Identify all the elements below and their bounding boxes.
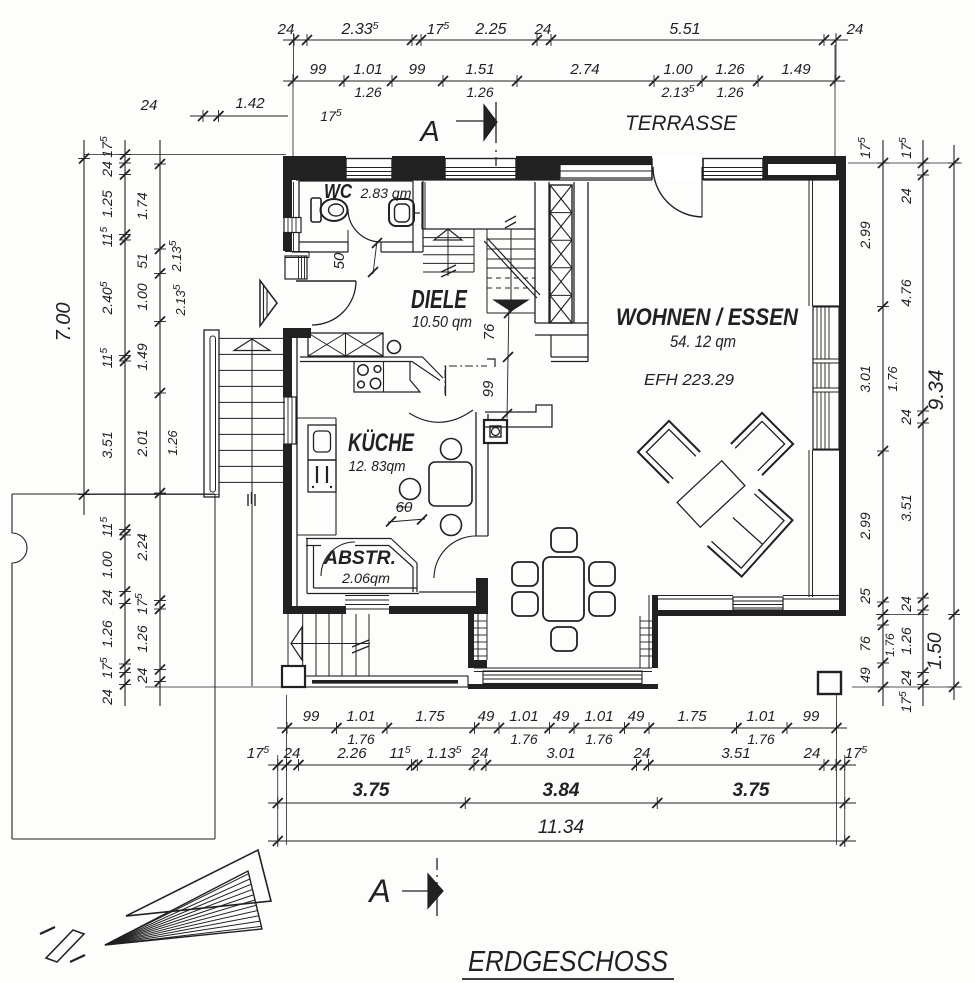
svg-text:3.01: 3.01 [857, 365, 873, 392]
svg-text:WOHNEN / ESSEN: WOHNEN / ESSEN [616, 304, 799, 331]
svg-text:4.76: 4.76 [898, 279, 914, 306]
svg-text:1.01: 1.01 [509, 708, 538, 725]
svg-text:1.01: 1.01 [353, 61, 382, 78]
svg-text:1.76: 1.76 [883, 633, 897, 657]
svg-text:1.26: 1.26 [715, 61, 745, 78]
svg-text:49: 49 [478, 708, 495, 725]
svg-text:49: 49 [628, 708, 645, 725]
svg-text:TERRASSE: TERRASSE [625, 112, 738, 135]
svg-text:54. 12 qm: 54. 12 qm [670, 332, 736, 351]
svg-text:99: 99 [409, 61, 426, 78]
svg-text:1.26: 1.26 [99, 620, 115, 647]
svg-text:2.74: 2.74 [569, 61, 599, 78]
svg-text:9.34: 9.34 [925, 370, 948, 411]
svg-text:DIELE: DIELE [411, 284, 467, 314]
svg-text:KÜCHE: KÜCHE [348, 428, 415, 457]
svg-text:99: 99 [803, 708, 820, 725]
svg-text:1.51: 1.51 [465, 61, 494, 78]
svg-text:1.26: 1.26 [165, 430, 180, 456]
svg-text:EFH 223.29: EFH 223.29 [644, 372, 734, 389]
svg-text:1.25: 1.25 [99, 190, 115, 217]
svg-text:1.76: 1.76 [747, 731, 774, 747]
svg-text:2.99: 2.99 [857, 221, 873, 249]
svg-text:50: 50 [331, 252, 348, 269]
svg-text:49: 49 [857, 667, 873, 683]
svg-text:12. 83qm: 12. 83qm [349, 458, 406, 475]
svg-text:2.25: 2.25 [474, 21, 506, 38]
svg-text:24: 24 [283, 745, 301, 762]
svg-text:A: A [367, 873, 390, 909]
svg-text:24: 24 [277, 21, 295, 38]
svg-text:1.01: 1.01 [346, 708, 375, 725]
svg-text:2.26: 2.26 [336, 745, 367, 762]
svg-text:25: 25 [857, 588, 873, 605]
svg-text:11.34: 11.34 [538, 817, 584, 838]
svg-text:A: A [418, 116, 439, 148]
svg-text:1.49: 1.49 [134, 343, 150, 370]
svg-text:76: 76 [857, 636, 873, 652]
svg-text:24: 24 [898, 188, 914, 205]
svg-text:3.51: 3.51 [99, 431, 115, 458]
svg-text:2.99: 2.99 [857, 512, 873, 540]
svg-text:ERDGESCHOSS: ERDGESCHOSS [468, 946, 669, 978]
svg-text:49: 49 [553, 708, 570, 725]
svg-text:1.50: 1.50 [925, 632, 946, 669]
svg-text:3.75: 3.75 [353, 780, 390, 801]
svg-text:24: 24 [846, 21, 864, 38]
svg-text:ABSTR.: ABSTR. [323, 548, 396, 569]
svg-text:24: 24 [134, 668, 150, 685]
svg-text:99: 99 [310, 61, 327, 78]
svg-text:2.24: 2.24 [134, 533, 150, 561]
svg-text:1.00: 1.00 [663, 61, 693, 78]
svg-text:24: 24 [898, 596, 914, 613]
svg-text:99: 99 [480, 380, 497, 397]
svg-text:5.51: 5.51 [669, 21, 700, 38]
svg-text:24: 24 [140, 97, 158, 114]
svg-text:2.01: 2.01 [134, 429, 150, 457]
svg-text:1.00: 1.00 [99, 551, 115, 578]
svg-text:3.75: 3.75 [733, 780, 770, 801]
svg-text:1.75: 1.75 [677, 708, 707, 725]
svg-text:2.06qm: 2.06qm [341, 570, 390, 586]
svg-text:1.49: 1.49 [781, 61, 811, 78]
svg-text:51: 51 [134, 253, 150, 269]
svg-text:24: 24 [471, 745, 489, 762]
svg-text:1.26: 1.26 [134, 625, 150, 652]
svg-text:24: 24 [99, 590, 115, 607]
svg-text:1.75: 1.75 [415, 708, 445, 725]
svg-text:3.51: 3.51 [898, 494, 914, 521]
svg-text:1.26: 1.26 [898, 627, 914, 654]
svg-text:24: 24 [534, 21, 552, 38]
svg-text:1.76: 1.76 [510, 731, 537, 747]
svg-text:3.51: 3.51 [721, 745, 750, 762]
svg-text:24: 24 [633, 745, 651, 762]
svg-text:99: 99 [303, 708, 320, 725]
svg-text:1.00: 1.00 [134, 283, 150, 310]
svg-text:60: 60 [396, 499, 413, 516]
svg-text:1.26: 1.26 [354, 84, 381, 100]
svg-text:3.01: 3.01 [546, 745, 575, 762]
svg-text:1.26: 1.26 [716, 84, 743, 100]
svg-text:1.74: 1.74 [134, 192, 150, 219]
svg-text:24: 24 [803, 745, 821, 762]
svg-text:3.84: 3.84 [543, 780, 580, 801]
svg-text:1.76: 1.76 [585, 731, 612, 747]
svg-text:1.01: 1.01 [584, 708, 613, 725]
svg-text:24: 24 [898, 670, 914, 687]
svg-text:1.42: 1.42 [235, 95, 265, 112]
svg-text:7.00: 7.00 [53, 303, 75, 342]
svg-text:24: 24 [99, 689, 115, 706]
svg-text:24: 24 [898, 409, 914, 426]
svg-text:24: 24 [99, 161, 115, 178]
svg-text:10.50 qm: 10.50 qm [412, 314, 472, 331]
svg-text:1.26: 1.26 [466, 84, 493, 100]
svg-text:1.01: 1.01 [746, 708, 775, 725]
svg-text:1.76: 1.76 [885, 366, 900, 392]
svg-text:76: 76 [481, 323, 498, 340]
